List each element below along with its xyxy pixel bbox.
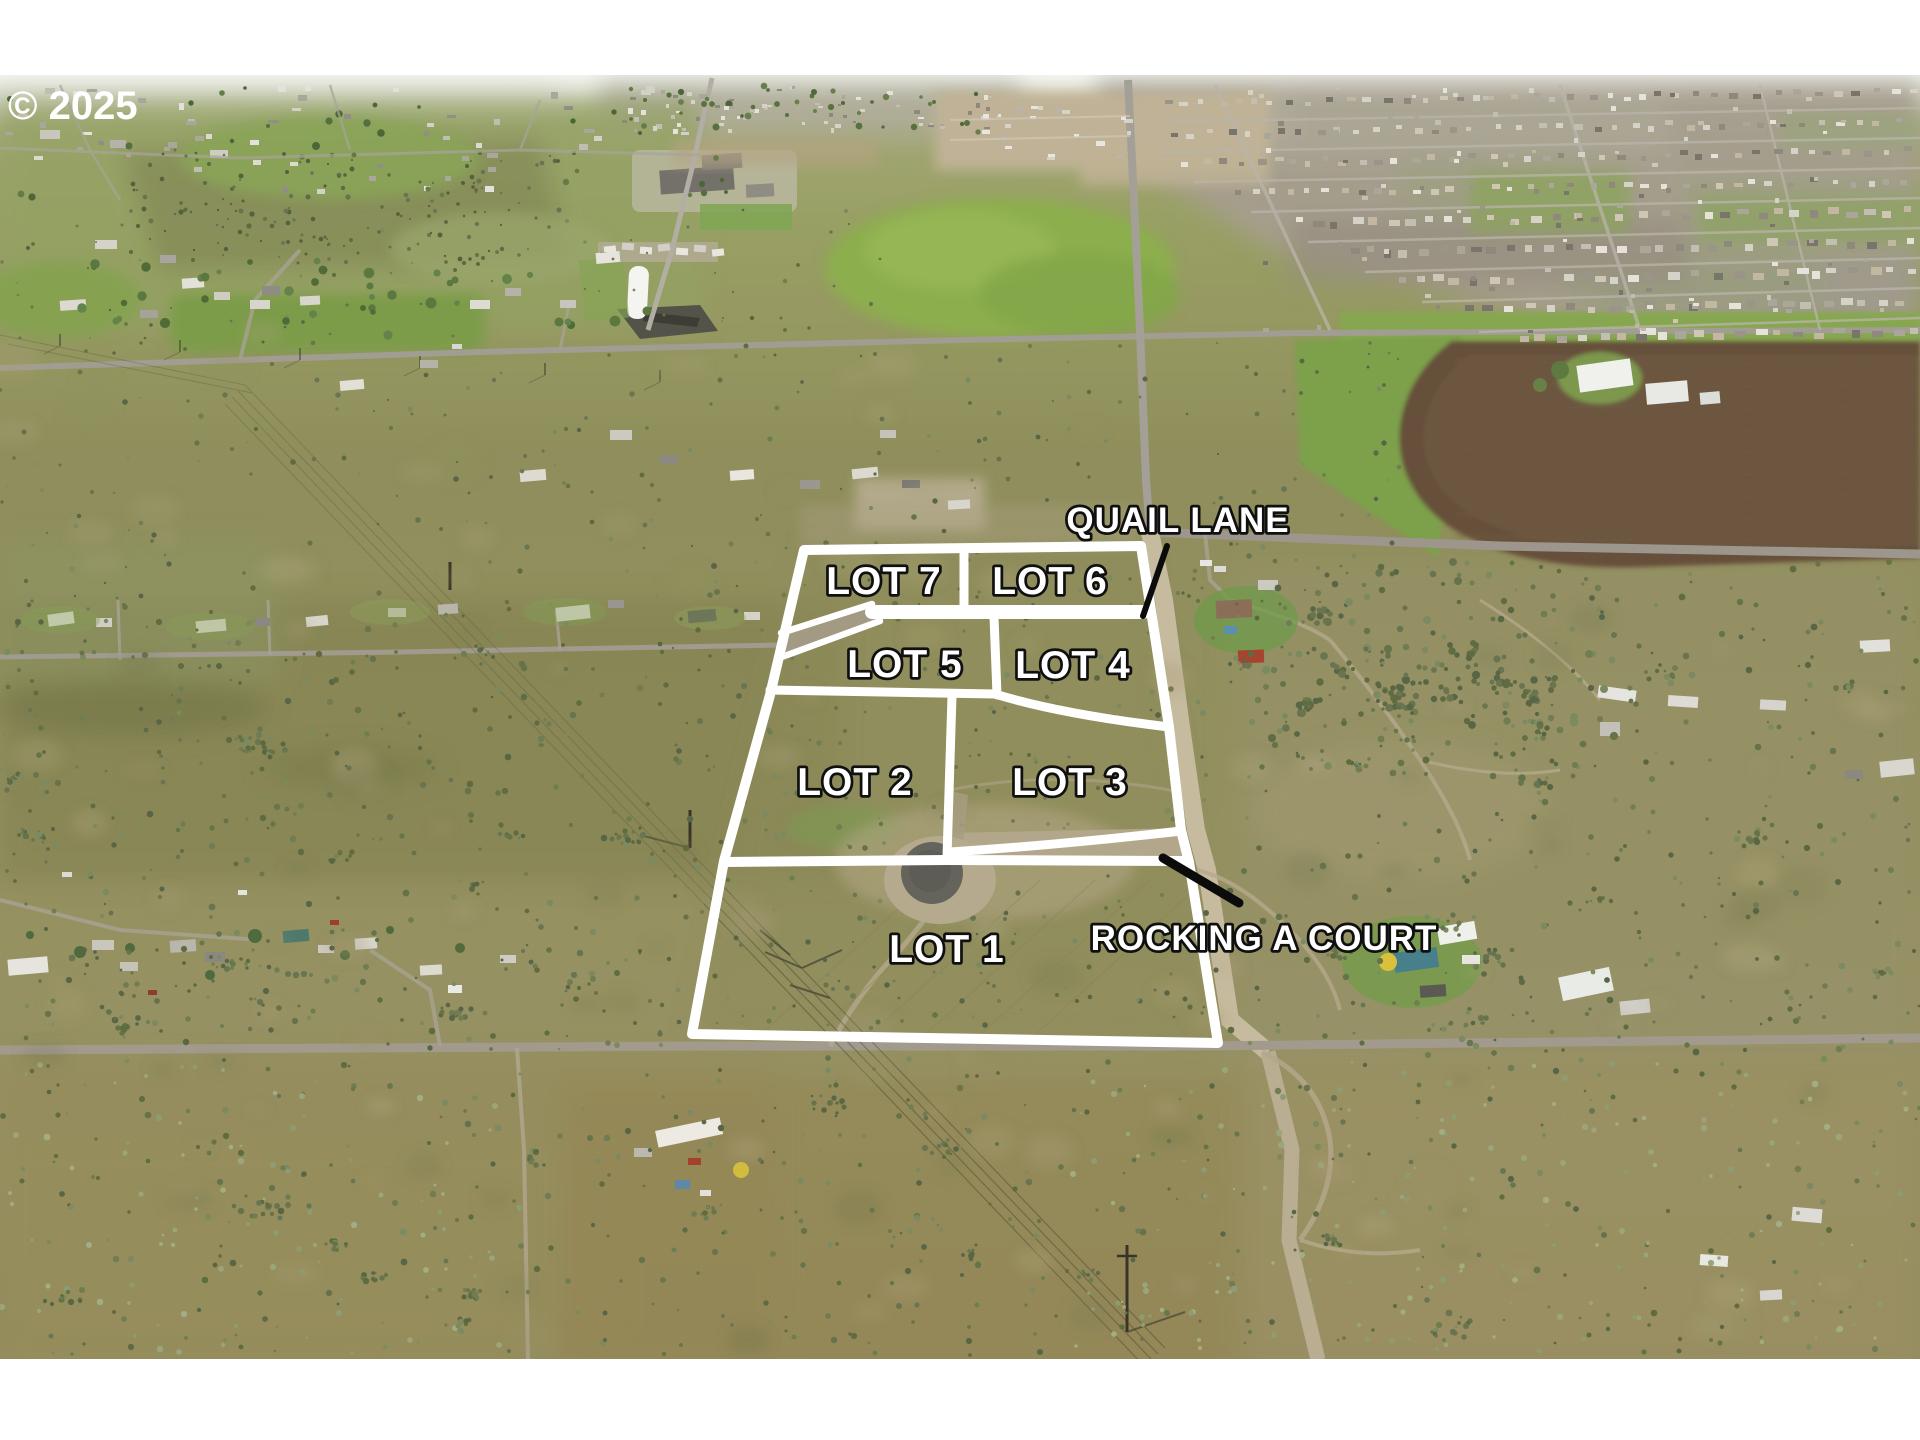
- svg-text:© 2025: © 2025: [8, 84, 138, 128]
- svg-text:LOT 7: LOT 7: [826, 560, 942, 603]
- svg-text:LOT 2: LOT 2: [797, 761, 913, 804]
- svg-text:LOT 6: LOT 6: [992, 560, 1108, 603]
- svg-text:ROCKING A COURT: ROCKING A COURT: [1091, 919, 1438, 958]
- svg-text:LOT 3: LOT 3: [1012, 761, 1128, 804]
- svg-text:LOT 1: LOT 1: [889, 928, 1005, 971]
- svg-text:LOT 5: LOT 5: [847, 643, 963, 686]
- svg-text:QUAIL LANE: QUAIL LANE: [1066, 501, 1289, 540]
- svg-text:LOT 4: LOT 4: [1015, 644, 1131, 687]
